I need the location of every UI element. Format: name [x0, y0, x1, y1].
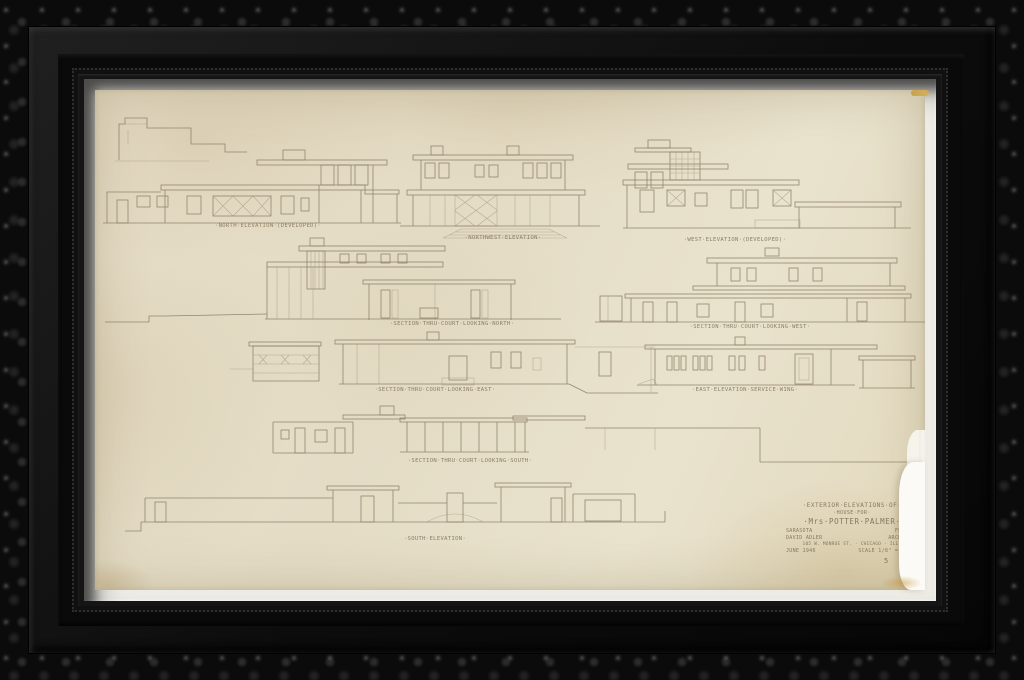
- drawing-sheet: ·NORTH·ELEVATION·(DEVELOPED)· ·NORTHWEST…: [95, 90, 925, 590]
- northwest-elevation-drawing: [400, 146, 600, 238]
- west-elevation-drawing: [623, 140, 911, 228]
- east-elevation-service-wing-drawing: [637, 337, 915, 388]
- stain-bottom-right: [881, 576, 921, 590]
- caption-section-north: ·SECTION·THRU·COURT·LOOKING·NORTH·: [390, 321, 514, 327]
- title-block-date: JUNE 1946: [786, 548, 816, 554]
- framed-drawing-photo: ·NORTH·ELEVATION·(DEVELOPED)· ·NORTHWEST…: [0, 0, 1024, 680]
- caption-west-elevation: ·WEST·ELEVATION·(DEVELOPED)·: [684, 237, 787, 243]
- stain-top-right: [911, 90, 929, 96]
- caption-northwest-elevation: ·NORTHWEST·ELEVATION·: [465, 235, 542, 241]
- stain-bottom-left: [95, 560, 155, 590]
- caption-south-elevation: ·SOUTH·ELEVATION·: [404, 536, 466, 542]
- caption-north-elevation: ·NORTH·ELEVATION·(DEVELOPED)·: [215, 223, 321, 229]
- title-block-architect-name: DAVID ADLER: [786, 535, 822, 541]
- south-elevation-drawing: [125, 483, 665, 531]
- section-looking-east-drawing: [230, 332, 658, 393]
- caption-section-east: ·SECTION·THRU·COURT·LOOKING·EAST·: [375, 387, 496, 393]
- section-looking-west-drawing: [595, 248, 925, 322]
- paper-damage-patch: [899, 462, 925, 590]
- caption-section-west: ·SECTION·THRU·COURT·LOOKING·WEST·: [690, 324, 811, 330]
- roof-detail-drawing: [115, 118, 247, 161]
- sheet-number: 5: [884, 557, 888, 565]
- section-looking-north-drawing: [105, 238, 561, 322]
- title-block-city: SARASOTA: [786, 528, 812, 534]
- caption-east-service-wing: ·EAST·ELEVATION·SERVICE·WING·: [692, 387, 798, 393]
- section-looking-south-drawing: [273, 406, 920, 462]
- caption-section-south: ·SECTION·THRU·COURT·LOOKING·SOUTH·: [408, 458, 532, 464]
